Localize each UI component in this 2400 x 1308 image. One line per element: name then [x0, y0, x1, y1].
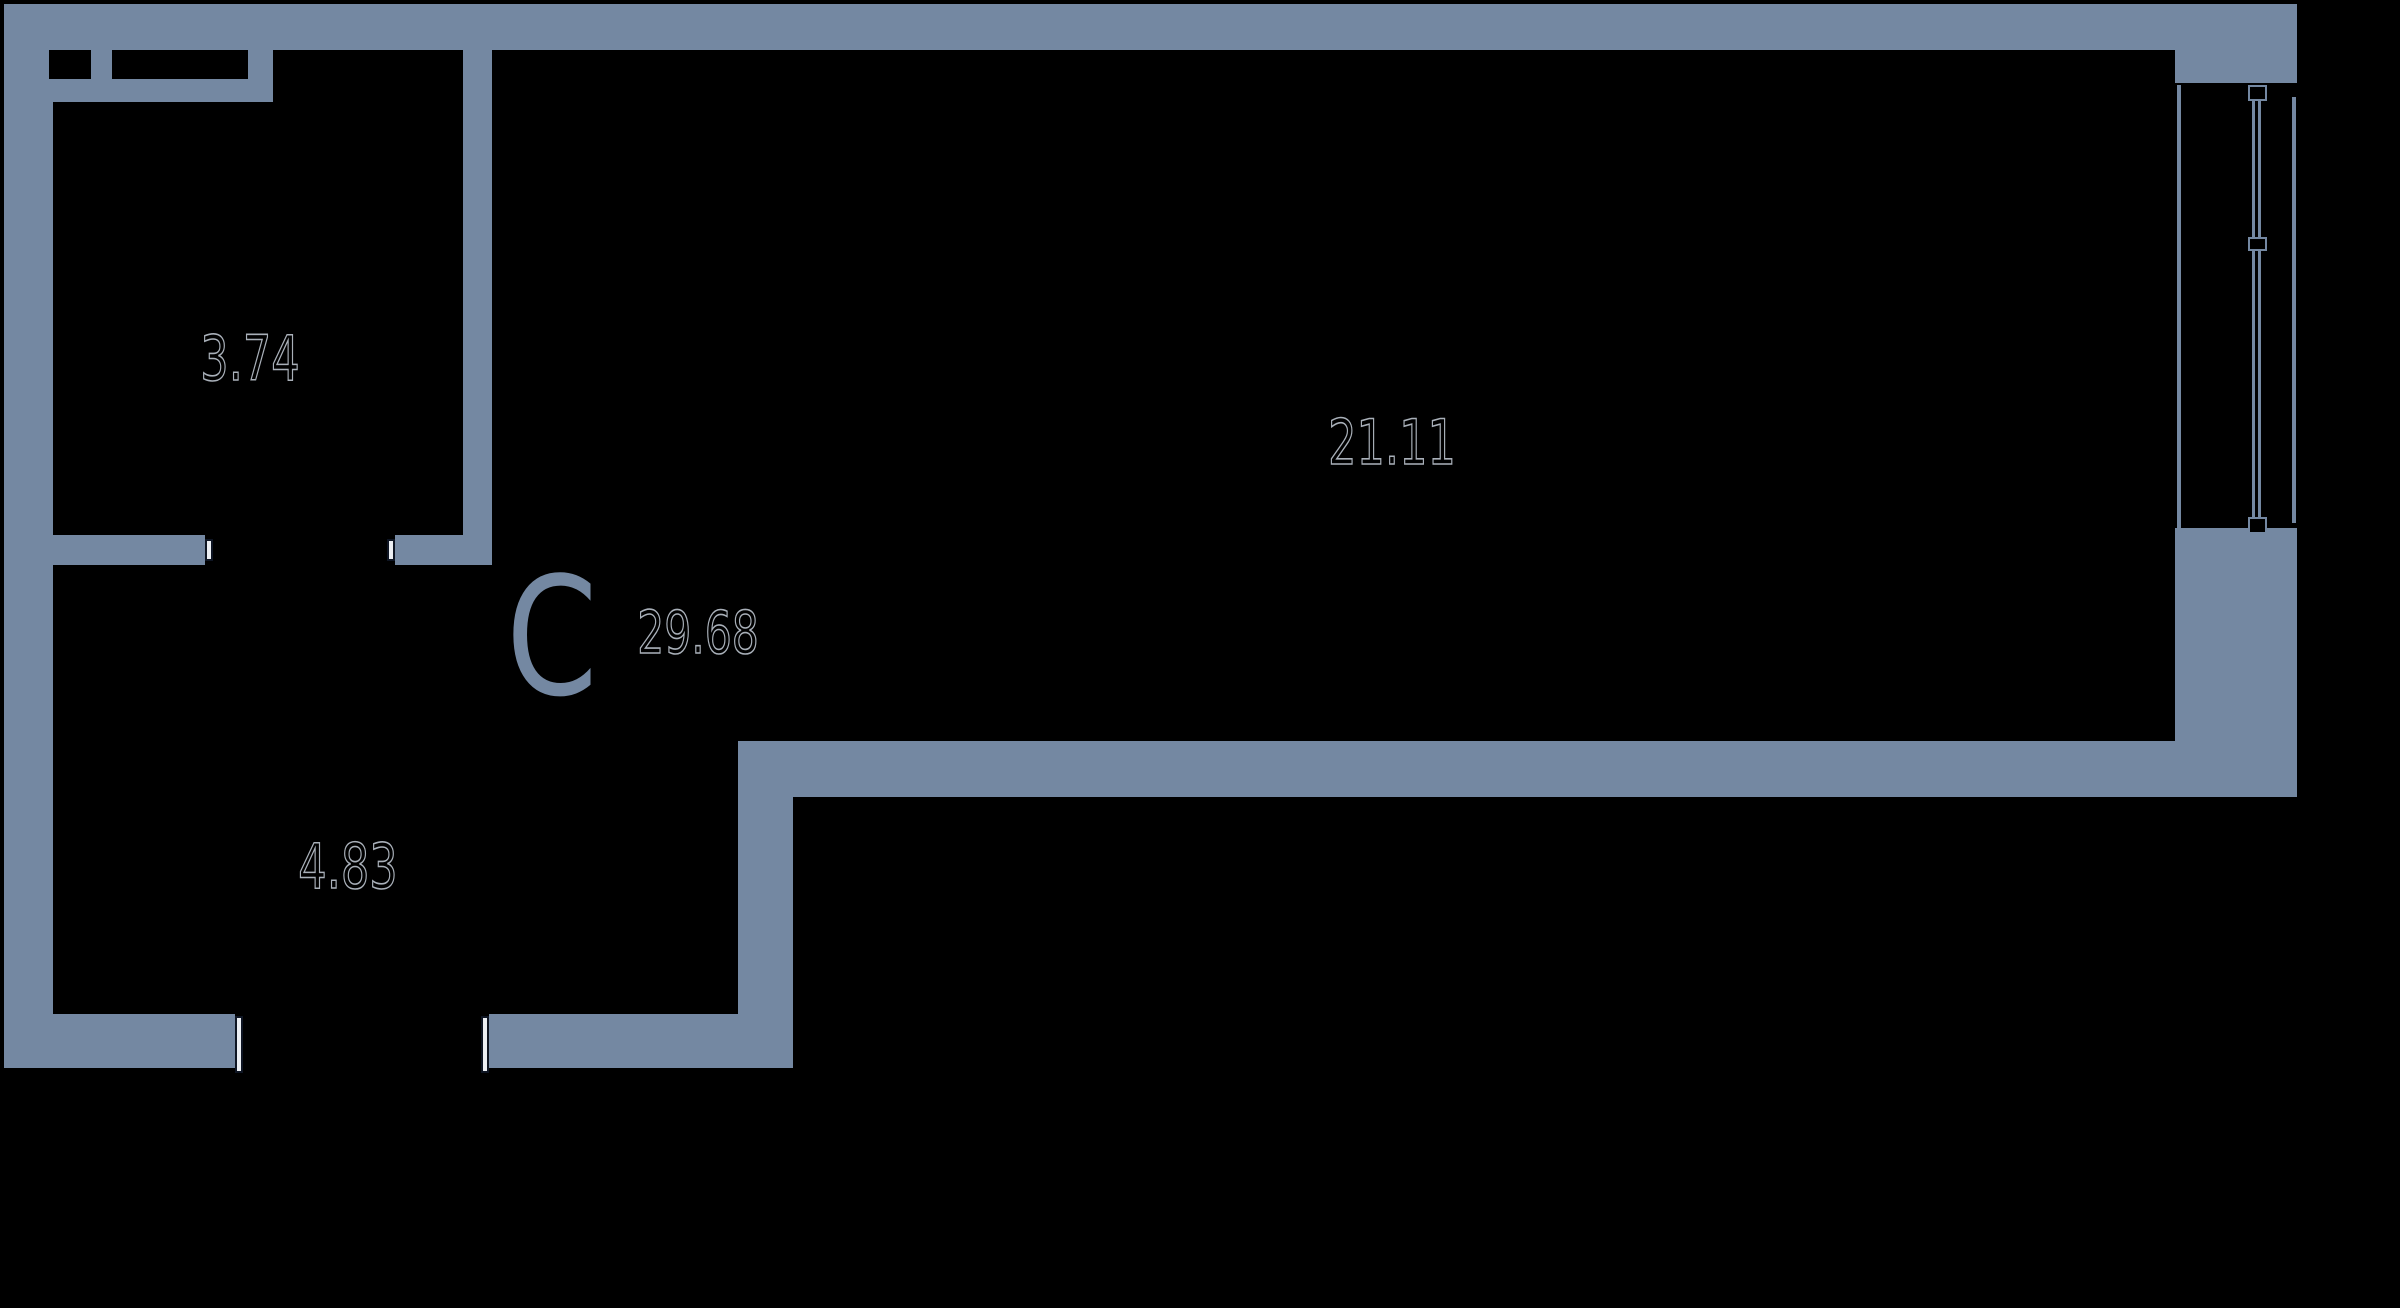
window-glazing-line-2 — [2258, 101, 2261, 517]
bathroom-wall-right-segment — [395, 535, 463, 565]
total-area-label: 29.68 — [612, 598, 785, 667]
top-right-corner-pier — [2175, 4, 2297, 83]
window-frame-top — [2248, 85, 2267, 101]
window-frame-middle — [2248, 237, 2267, 251]
window-sill-inner-line — [2177, 85, 2181, 537]
floor-plan: 3.74 21.11 4.83 29.68 С — [0, 0, 2400, 1308]
entry-door-jamb-left — [235, 1016, 243, 1073]
window-outer-wall-line — [2292, 97, 2296, 523]
entry-door-jamb-right — [481, 1016, 489, 1073]
window-glazing-line-1 — [2252, 101, 2255, 517]
bottom-left-wall-segment — [4, 1014, 235, 1068]
window-frame-bottom — [2248, 517, 2267, 534]
studio-letter: С — [506, 556, 598, 720]
shaft-opening-small — [49, 50, 91, 79]
room-divider-wall-vertical — [463, 50, 492, 565]
bathroom-door-jamb-left — [205, 539, 213, 561]
area-label-21-11: 21.11 — [1306, 406, 1479, 479]
top-exterior-wall — [4, 4, 2175, 50]
right-bottom-pier — [2175, 528, 2297, 797]
bathroom-door-jamb-right — [387, 539, 395, 561]
area-label-3-74: 3.74 — [164, 322, 337, 395]
left-exterior-wall — [4, 102, 53, 1014]
bathroom-wall-left-segment — [53, 535, 205, 565]
main-bottom-wall — [738, 741, 2297, 797]
shaft-opening-large — [112, 50, 248, 79]
area-label-4-83: 4.83 — [262, 830, 435, 903]
